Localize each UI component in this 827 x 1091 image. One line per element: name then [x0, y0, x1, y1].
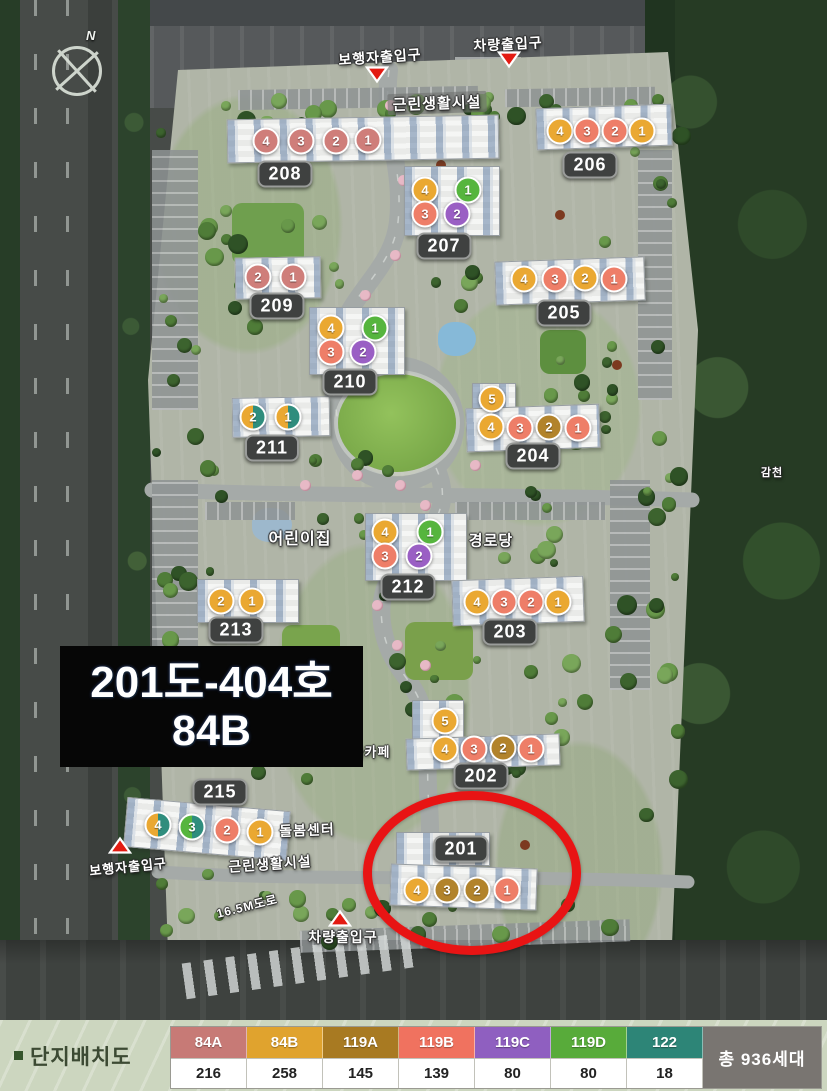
blossom-tree	[395, 480, 406, 491]
tree	[498, 552, 511, 565]
building-label-209: 209	[249, 293, 304, 320]
unit-circle-213-2: 2	[208, 588, 235, 615]
legend-count-119D: 80	[551, 1058, 627, 1088]
tree	[656, 179, 666, 189]
unit-circle-203-1: 1	[545, 589, 572, 616]
tree	[454, 299, 468, 313]
legend-count-119C: 80	[475, 1058, 551, 1088]
unit-circle-215-3: 3	[179, 814, 206, 841]
tree	[335, 279, 345, 289]
legend-count-84A: 216	[171, 1058, 247, 1088]
blossom-tree	[390, 250, 401, 261]
unit-circle-207-1: 1	[455, 177, 482, 204]
unit-circle-203-4: 4	[464, 589, 491, 616]
unit-circle-206-3: 3	[574, 118, 601, 145]
unit-circle-215-1: 1	[247, 819, 274, 846]
tree	[228, 234, 248, 254]
building-label-211: 211	[245, 435, 299, 462]
building-label-208: 208	[257, 161, 312, 188]
entrance-triangle-icon	[497, 51, 521, 74]
tree	[639, 808, 653, 822]
building-label-215: 215	[192, 779, 247, 806]
unit-circle-212-2: 2	[406, 543, 433, 570]
entrance-triangle-icon	[108, 837, 132, 860]
tree	[648, 508, 666, 526]
unit-circle-209-2: 2	[245, 264, 272, 291]
unit-circle-204-2: 2	[536, 414, 563, 441]
unit-circle-206-2: 2	[602, 118, 629, 145]
map-label: 경로당	[469, 530, 513, 551]
tree	[205, 248, 224, 267]
tree	[651, 340, 665, 354]
legend-swatch-119C: 119C	[475, 1027, 551, 1058]
unit-circle-202-3: 3	[461, 736, 488, 763]
tree	[507, 107, 525, 125]
blossom-tree	[352, 470, 363, 481]
unit-circle-206-1: 1	[629, 118, 656, 145]
unit-circle-207-3: 3	[412, 201, 439, 228]
tree	[179, 572, 198, 591]
tree	[289, 890, 306, 907]
tree	[382, 465, 394, 477]
blossom-tree	[470, 460, 481, 471]
legend-swatch-122: 122	[627, 1027, 703, 1058]
tree	[545, 712, 558, 725]
tree	[281, 219, 295, 233]
tree	[159, 294, 168, 303]
tree	[202, 869, 213, 880]
legend-swatch-119B: 119B	[399, 1027, 475, 1058]
unit-circle-209-1: 1	[280, 264, 307, 291]
tree	[247, 319, 263, 335]
shrub	[612, 360, 622, 370]
unit-info-overlay: 201도-404호 84B	[60, 646, 363, 767]
unit-circle-212-4: 4	[372, 519, 399, 546]
unit-circle-215-4: 4	[145, 812, 172, 839]
tree	[191, 345, 201, 355]
tree	[542, 503, 552, 513]
tree	[537, 541, 556, 560]
unit-circle-204-1: 1	[565, 415, 592, 442]
blossom-tree	[372, 600, 383, 611]
unit-circle-205-1: 1	[601, 266, 628, 293]
blossom-tree	[420, 500, 431, 511]
tree	[599, 411, 611, 423]
unit-circle-210-1: 1	[362, 315, 389, 342]
shrub	[555, 210, 565, 220]
unit-circle-207-2: 2	[444, 201, 471, 228]
blossom-tree	[360, 290, 371, 301]
tree	[430, 675, 439, 684]
building-label-205: 205	[536, 300, 591, 327]
blossom-tree	[300, 480, 311, 491]
unit-circle-212-1: 1	[417, 519, 444, 546]
unit-circle-210-2: 2	[350, 339, 377, 366]
legend-swatch-119D: 119D	[551, 1027, 627, 1058]
parking-strip	[610, 480, 650, 690]
unit-circle-208-4: 4	[253, 128, 280, 155]
tree	[156, 878, 168, 890]
playground-lawn	[232, 203, 304, 265]
parking-strip	[205, 502, 295, 520]
unit-info-line1: 201도-404호	[90, 658, 332, 707]
unit-circle-204-4: 4	[478, 414, 505, 441]
tree	[599, 236, 611, 248]
unit-circle-213-1: 1	[239, 588, 266, 615]
compass-icon	[52, 46, 102, 96]
tree	[163, 583, 178, 598]
bullet-square-icon	[14, 1051, 23, 1060]
unit-circle-205-3: 3	[542, 266, 569, 293]
tree	[301, 773, 313, 785]
legend-count-84B: 258	[247, 1058, 323, 1088]
parking-strip	[455, 502, 605, 520]
unit-circle-202-4: 4	[432, 736, 459, 763]
tree	[512, 769, 520, 777]
tree	[643, 487, 652, 496]
map-label: 돌봄센터	[279, 819, 335, 841]
building-label-213: 213	[208, 617, 263, 644]
tree	[657, 667, 674, 684]
blossom-tree	[420, 660, 431, 671]
tree	[601, 919, 619, 937]
tree	[251, 765, 266, 780]
unit-circle-208-3: 3	[288, 128, 315, 155]
compass-north-label: N	[86, 28, 95, 43]
tree	[546, 526, 563, 543]
unit-circle-206-4: 4	[547, 118, 574, 145]
tree	[671, 724, 686, 739]
unit-circle-211-1: 1	[275, 404, 302, 431]
tree	[670, 467, 689, 486]
tree	[544, 388, 559, 403]
legend-count-119B: 139	[399, 1058, 475, 1088]
tree	[578, 390, 590, 402]
map-label: 감천	[761, 464, 783, 480]
unit-circle-205-2: 2	[572, 265, 599, 292]
tree	[400, 681, 412, 693]
legend-title-text: 단지배치도	[30, 1041, 132, 1071]
tree	[354, 513, 364, 523]
map-label: 어린이집	[269, 525, 332, 549]
tree	[662, 497, 676, 511]
tree	[215, 490, 228, 503]
tree	[177, 338, 192, 353]
tree	[435, 641, 446, 652]
tree	[200, 460, 216, 476]
unit-circle-202-2: 2	[490, 735, 517, 762]
unit-circle-210-3: 3	[318, 339, 345, 366]
unit-circle-205-4: 4	[511, 266, 538, 293]
entrance-triangle-icon	[365, 66, 389, 89]
unit-circle-202-5: 5	[432, 708, 459, 735]
unit-circle-203-2: 2	[518, 589, 545, 616]
legend-swatch-84B: 84B	[247, 1027, 323, 1058]
site-plan-screenshot: 2084321206432120741322092120543212104132…	[0, 0, 827, 1091]
unit-info-line2: 84B	[172, 707, 251, 755]
parking-strip	[152, 150, 198, 410]
tree	[562, 654, 581, 673]
building-label-202: 202	[453, 763, 508, 790]
entrance-triangle-icon	[328, 910, 352, 933]
tree	[156, 128, 165, 137]
building-label-212: 212	[380, 574, 435, 601]
unit-circle-204-3: 3	[507, 415, 534, 442]
tree	[293, 906, 308, 921]
unit-circle-207-4: 4	[412, 177, 439, 204]
tree	[431, 277, 441, 287]
tree	[317, 513, 329, 525]
blossom-tree	[392, 640, 403, 651]
legend-total: 총 936세대	[703, 1027, 821, 1088]
legend-title: 단지배치도	[14, 1020, 132, 1091]
legend-swatch-119A: 119A	[323, 1027, 399, 1058]
building-label-206: 206	[562, 152, 617, 179]
tree	[165, 315, 177, 327]
unit-circle-211-2: 2	[240, 404, 267, 431]
tree	[601, 425, 610, 434]
unit-circle-212-3: 3	[372, 543, 399, 570]
tree	[558, 698, 567, 707]
tree	[607, 341, 618, 352]
tree	[465, 265, 480, 280]
unit-circle-215-2: 2	[214, 817, 241, 844]
tree	[550, 559, 558, 567]
unit-circle-203-3: 3	[491, 589, 518, 616]
highlight-circle-201	[363, 791, 581, 955]
building-label-207: 207	[416, 233, 471, 260]
legend-count-119A: 145	[323, 1058, 399, 1088]
unit-circle-208-2: 2	[323, 128, 350, 155]
legend-swatch-84A: 84A	[171, 1027, 247, 1058]
building-label-204: 204	[505, 443, 560, 470]
tree	[649, 598, 664, 613]
tree	[672, 127, 690, 145]
map-label: 근린생활시설	[387, 91, 486, 115]
legend-count-122: 18	[627, 1058, 703, 1088]
tree	[187, 428, 204, 445]
tree	[605, 626, 622, 643]
unit-circle-210-4: 4	[318, 315, 345, 342]
building-label-203: 203	[482, 619, 537, 646]
lawn-patch	[540, 330, 586, 374]
tree	[617, 595, 637, 615]
legend-table: 총 936세대 84A21684B258119A145119B139119C80…	[170, 1026, 822, 1089]
tree	[206, 567, 214, 575]
unit-circle-204-5: 5	[479, 386, 506, 413]
building-label-210: 210	[322, 369, 377, 396]
tree	[524, 665, 538, 679]
pond	[438, 322, 476, 356]
unit-circle-202-1: 1	[518, 736, 545, 763]
unit-circle-208-1: 1	[355, 127, 382, 154]
